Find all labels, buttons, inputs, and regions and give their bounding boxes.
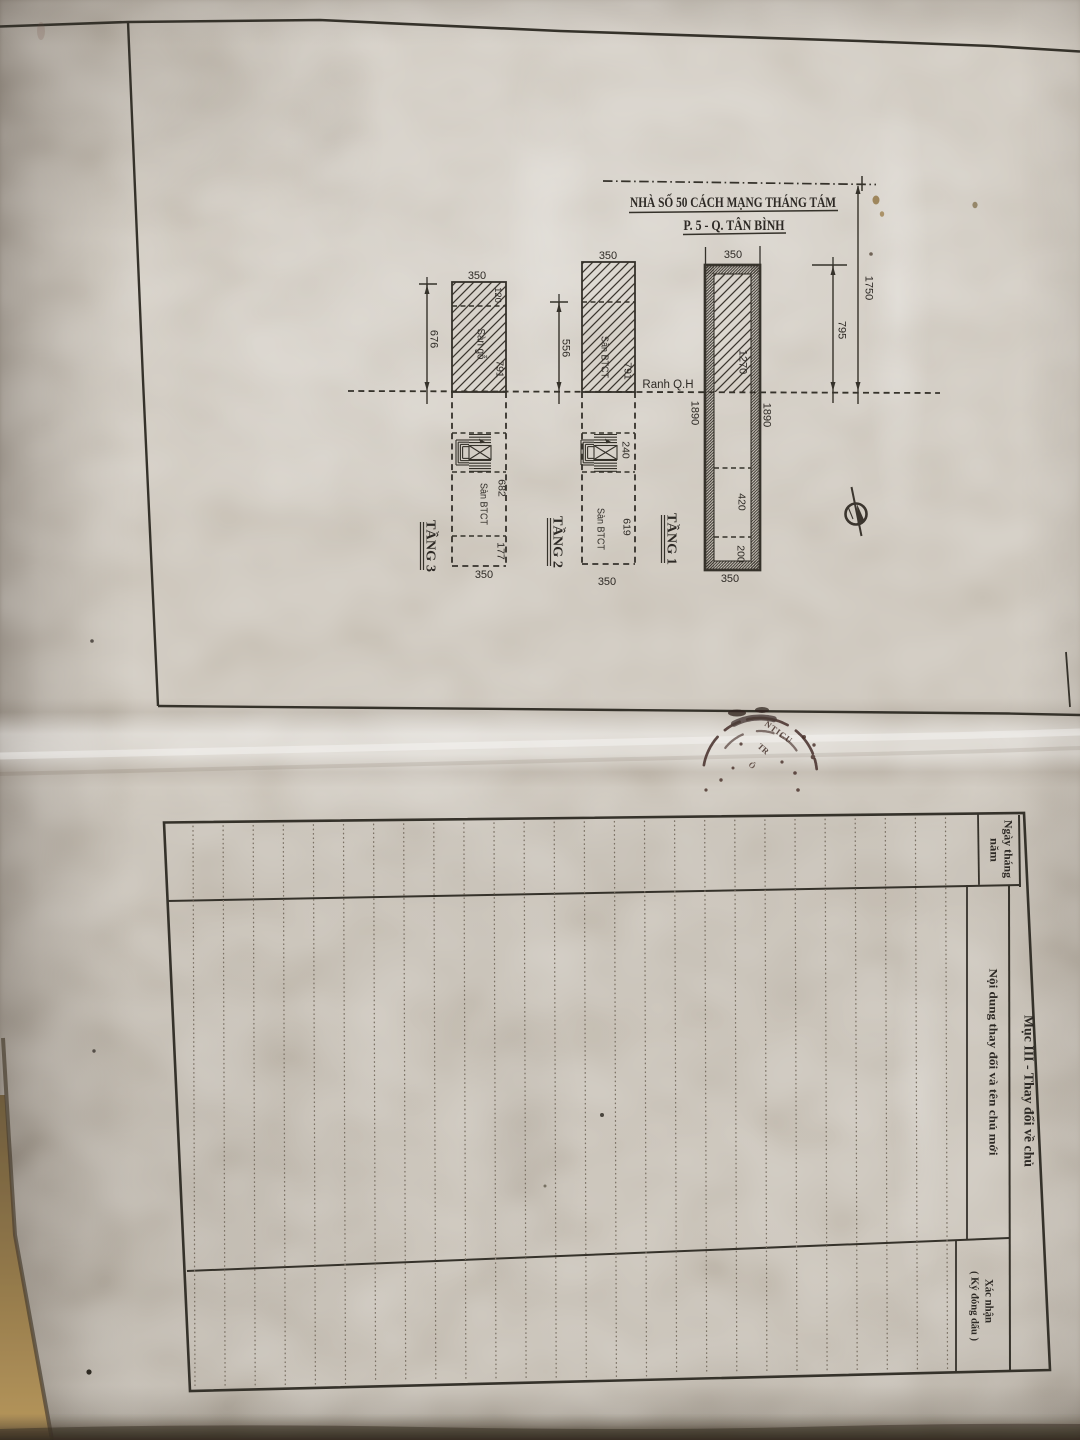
svg-text:1890: 1890: [761, 403, 773, 427]
svg-text:1270: 1270: [737, 350, 749, 374]
svg-text:200: 200: [735, 545, 747, 563]
svg-text:Mục III - Thay đổi về chủ: Mục III - Thay đổi về chủ: [1022, 1015, 1037, 1167]
svg-text:TẦNG 1: TẦNG 1: [664, 513, 681, 565]
svg-text:Sàn gỗ: Sàn gỗ: [475, 329, 488, 360]
svg-text:Sàn BTCT: Sàn BTCT: [478, 483, 490, 526]
svg-text:619: 619: [621, 518, 633, 536]
svg-text:420: 420: [736, 493, 748, 511]
svg-text:TR: TR: [756, 741, 772, 757]
svg-text:P. 5 - Q. TÂN BÌNH: P. 5 - Q. TÂN BÌNH: [684, 217, 785, 234]
svg-text:Ô: Ô: [747, 759, 758, 770]
svg-text:Sàn BTCT: Sàn BTCT: [595, 508, 607, 551]
svg-text:240: 240: [620, 441, 632, 459]
svg-text:( Ký đóng dấu ): ( Ký đóng dấu ): [969, 1271, 981, 1341]
svg-text:350: 350: [468, 270, 486, 282]
svg-text:350: 350: [721, 573, 739, 585]
svg-text:177: 177: [495, 542, 507, 560]
svg-text:1750: 1750: [863, 276, 875, 300]
svg-text:350: 350: [724, 249, 742, 261]
svg-text:795: 795: [836, 321, 848, 339]
svg-text:TẦNG 3: TẦNG 3: [423, 520, 440, 572]
svg-text:Nội dung thay đổi và tên chủ m: Nội dung thay đổi và tên chủ mới: [986, 969, 999, 1157]
svg-text:556: 556: [560, 339, 572, 357]
svg-text:TẦNG 2: TẦNG 2: [550, 516, 567, 568]
svg-text:năm: năm: [987, 838, 999, 862]
svg-text:Xác nhận: Xác nhận: [982, 1279, 994, 1324]
svg-text:350: 350: [599, 250, 617, 262]
svg-text:791: 791: [622, 362, 634, 380]
svg-text:350: 350: [598, 576, 616, 588]
svg-text:NHÀ SỐ 50 CÁCH MẠNG THÁNG TÁM: NHÀ SỐ 50 CÁCH MẠNG THÁNG TÁM: [630, 193, 836, 211]
svg-text:1890: 1890: [689, 401, 701, 425]
svg-text:Ranh Q.H: Ranh Q.H: [642, 379, 693, 391]
svg-text:Ngày tháng: Ngày tháng: [1001, 820, 1013, 878]
svg-text:676: 676: [428, 330, 440, 348]
svg-text:682: 682: [496, 479, 508, 497]
svg-text:Sàn BTCT: Sàn BTCT: [599, 336, 611, 379]
svg-text:791: 791: [494, 360, 506, 378]
svg-text:120: 120: [492, 287, 503, 303]
svg-text:350: 350: [475, 569, 493, 581]
